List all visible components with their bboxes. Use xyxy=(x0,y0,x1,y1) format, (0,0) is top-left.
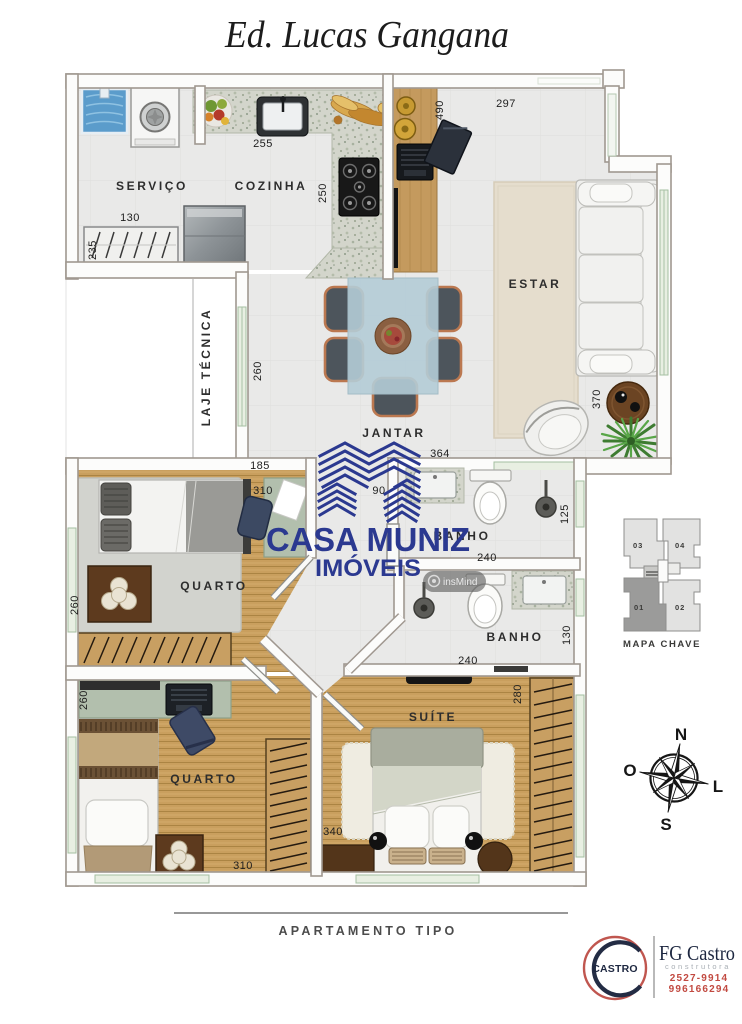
svg-text:90: 90 xyxy=(372,485,385,497)
svg-text:130: 130 xyxy=(120,212,140,224)
svg-text:APARTAMENTO TIPO: APARTAMENTO TIPO xyxy=(279,924,458,938)
svg-text:125: 125 xyxy=(559,504,571,524)
svg-text:QUARTO: QUARTO xyxy=(180,579,247,593)
svg-text:310: 310 xyxy=(253,485,273,497)
svg-text:CASTRO: CASTRO xyxy=(592,963,638,975)
svg-text:240: 240 xyxy=(458,655,478,667)
svg-text:BANHO: BANHO xyxy=(487,630,544,644)
svg-text:260: 260 xyxy=(78,690,90,710)
svg-text:370: 370 xyxy=(591,389,603,409)
svg-text:L: L xyxy=(713,777,723,796)
svg-text:CASA MUNIZ: CASA MUNIZ xyxy=(266,521,470,558)
svg-text:Ed. Lucas Gangana: Ed. Lucas Gangana xyxy=(224,14,509,56)
svg-text:N: N xyxy=(675,725,687,744)
svg-text:996166294: 996166294 xyxy=(669,984,730,995)
svg-text:MAPA CHAVE: MAPA CHAVE xyxy=(623,639,701,650)
svg-text:LAJE TÉCNICA: LAJE TÉCNICA xyxy=(198,308,213,427)
svg-text:260: 260 xyxy=(252,361,264,381)
svg-text:297: 297 xyxy=(496,98,516,110)
svg-text:QUARTO: QUARTO xyxy=(170,772,237,786)
svg-text:SERVIÇO: SERVIÇO xyxy=(116,179,188,193)
svg-text:COZINHA: COZINHA xyxy=(235,179,308,193)
svg-text:S: S xyxy=(660,815,671,834)
svg-text:130: 130 xyxy=(561,625,573,645)
svg-text:02: 02 xyxy=(675,603,685,612)
svg-text:364: 364 xyxy=(430,448,450,460)
svg-text:O: O xyxy=(623,761,636,780)
svg-text:03: 03 xyxy=(633,541,643,550)
svg-text:construtora: construtora xyxy=(665,962,731,971)
svg-text:JANTAR: JANTAR xyxy=(362,426,425,440)
svg-text:255: 255 xyxy=(253,138,273,150)
svg-text:240: 240 xyxy=(477,552,497,564)
svg-text:SUÍTE: SUÍTE xyxy=(409,709,457,724)
svg-text:2527-9914: 2527-9914 xyxy=(670,973,729,984)
svg-text:235: 235 xyxy=(87,240,99,260)
svg-text:340: 340 xyxy=(323,826,343,838)
svg-text:280: 280 xyxy=(512,684,524,704)
svg-text:260: 260 xyxy=(69,595,81,615)
svg-text:310: 310 xyxy=(233,860,253,872)
svg-text:250: 250 xyxy=(317,183,329,203)
svg-text:01: 01 xyxy=(634,603,644,612)
svg-text:04: 04 xyxy=(675,541,685,550)
svg-text:insMind: insMind xyxy=(443,577,477,588)
svg-text:490: 490 xyxy=(434,100,446,120)
svg-text:ESTAR: ESTAR xyxy=(509,277,562,291)
svg-text:IMÓVEIS: IMÓVEIS xyxy=(315,554,421,582)
